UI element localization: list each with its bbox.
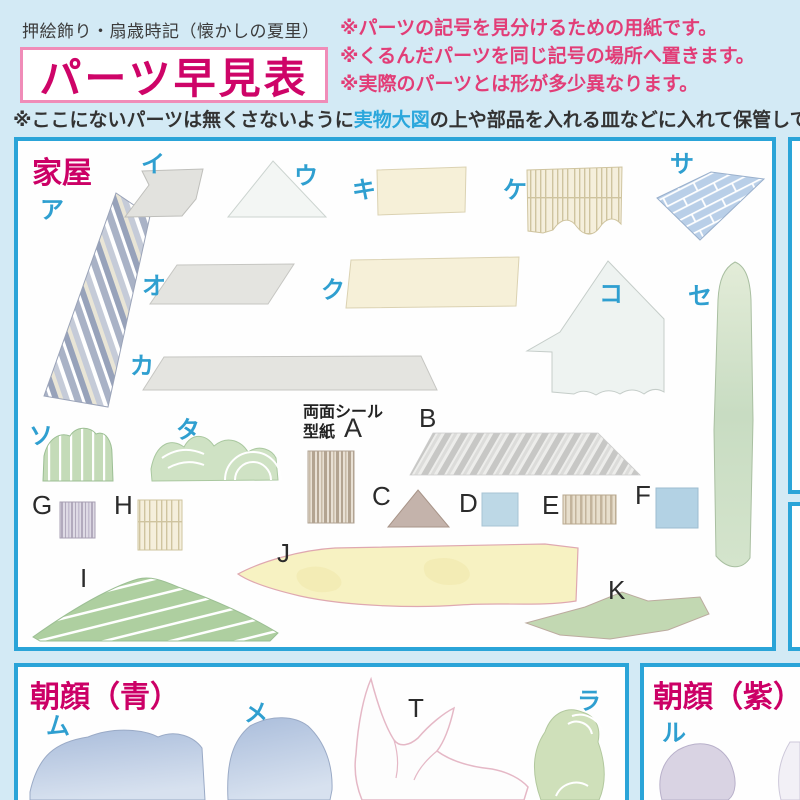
part-ku-label: ク [321, 270, 345, 305]
storage-note-prefix: ※ここにないパーツは無くさないように [13, 110, 354, 131]
part-ke-label: ケ [503, 170, 527, 205]
part-ra-label: ラ [577, 681, 601, 716]
part-u-label: ウ [294, 156, 318, 191]
usage-note-2: ※くるんだパーツを同じ記号の場所へ置きます。 [340, 43, 755, 71]
part-A-label: A [344, 413, 362, 444]
panel-title-house: 家屋 [32, 148, 92, 192]
part-I-label: I [80, 563, 87, 594]
part-so-label: ソ [29, 416, 53, 451]
panel-house [14, 137, 776, 651]
part-C-label: C [372, 481, 391, 512]
part-J-label: J [277, 538, 290, 569]
part-ru-label: ル [662, 713, 686, 748]
part-F-label: F [635, 480, 651, 511]
part-o-label: オ [142, 266, 166, 301]
part-ka-label: カ [130, 346, 154, 381]
part-se-label: セ [688, 276, 712, 311]
part-B-label: B [419, 403, 436, 434]
parts-reference-sheet: 押絵飾り・扇歳時記（懐かしの夏里） パーツ早見表 ※パーツの記号を見分けるための… [0, 0, 800, 800]
part-a-label: ア [40, 190, 64, 225]
part-me-label: メ [244, 693, 268, 728]
part-G-label: G [32, 490, 52, 521]
part-i-label: イ [141, 144, 165, 179]
sheet-title-box: パーツ早見表 [20, 47, 328, 103]
usage-note-3: ※実際のパーツとは形が多少異なります。 [340, 71, 755, 99]
usage-note-1: ※パーツの記号を見分けるための用紙です。 [340, 15, 755, 43]
sticker-note: 両面シール 型紙 [303, 403, 383, 443]
part-ko-label: コ [599, 274, 623, 309]
product-line-title: 押絵飾り・扇歳時記（懐かしの夏里） [22, 17, 320, 42]
part-ta-label: タ [176, 410, 200, 445]
part-ki-label: キ [352, 170, 376, 205]
part-sa-label: サ [670, 144, 694, 179]
sticker-note-line1: 両面シール [303, 403, 383, 423]
sheet-title: パーツ早見表 [39, 45, 308, 106]
part-mu-label: ム [46, 706, 70, 741]
part-K-label: K [608, 575, 625, 606]
storage-note-highlight: 実物大図 [354, 110, 430, 131]
part-E-label: E [542, 490, 559, 521]
part-T-label: T [408, 693, 424, 724]
panel-right-cutoff-bottom [788, 502, 800, 651]
storage-note-suffix: の上や部品を入れる皿などに入れて保管しておきま [430, 110, 800, 131]
part-H-label: H [114, 490, 133, 521]
part-D-label: D [459, 488, 478, 519]
sticker-note-line2: 型紙 [303, 423, 383, 443]
panel-title-asagao-purple: 朝顔（紫） [653, 672, 800, 716]
usage-notes: ※パーツの記号を見分けるための用紙です。 ※くるんだパーツを同じ記号の場所へ置き… [340, 15, 755, 99]
storage-note: ※ここにないパーツは無くさないように実物大図の上や部品を入れる皿などに入れて保管… [13, 105, 800, 132]
panel-right-cutoff-top [788, 137, 800, 494]
